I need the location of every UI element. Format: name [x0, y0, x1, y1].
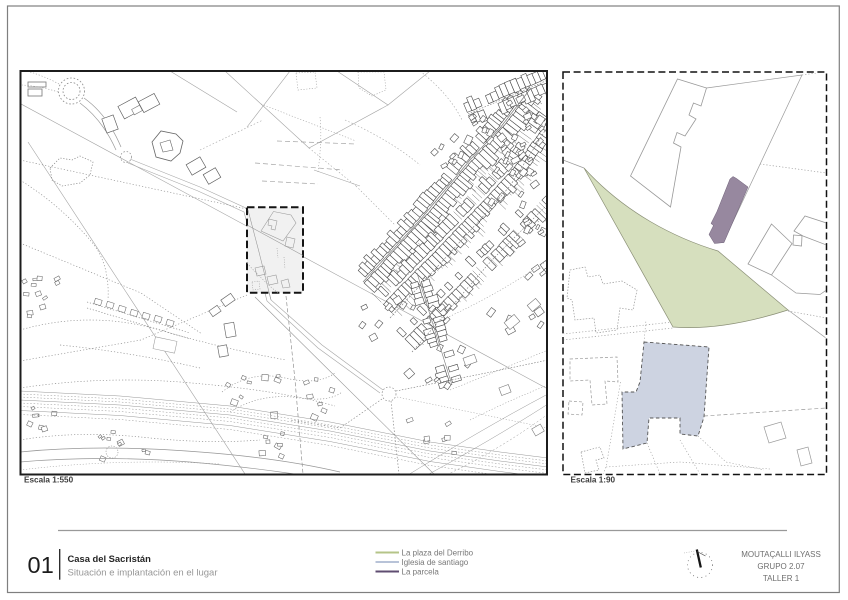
- svg-text:Iglesia de santiago: Iglesia de santiago: [402, 558, 469, 567]
- svg-text:Escala 1:90: Escala 1:90: [571, 476, 616, 485]
- svg-text:TALLER 1: TALLER 1: [763, 574, 800, 583]
- svg-text:La plaza del Derribo: La plaza del Derribo: [402, 549, 474, 558]
- svg-text:MOUTAÇALLI ILYASS: MOUTAÇALLI ILYASS: [741, 550, 821, 559]
- svg-text:La parcela: La parcela: [402, 568, 440, 577]
- svg-text:Situación e implantación en el: Situación e implantación en el lugar: [68, 568, 218, 579]
- svg-text:Escala 1:550: Escala 1:550: [24, 476, 74, 485]
- svg-text:GRUPO 2.07: GRUPO 2.07: [757, 562, 805, 571]
- svg-text:Casa del Sacristán: Casa del Sacristán: [68, 553, 152, 564]
- svg-text:01: 01: [28, 552, 55, 578]
